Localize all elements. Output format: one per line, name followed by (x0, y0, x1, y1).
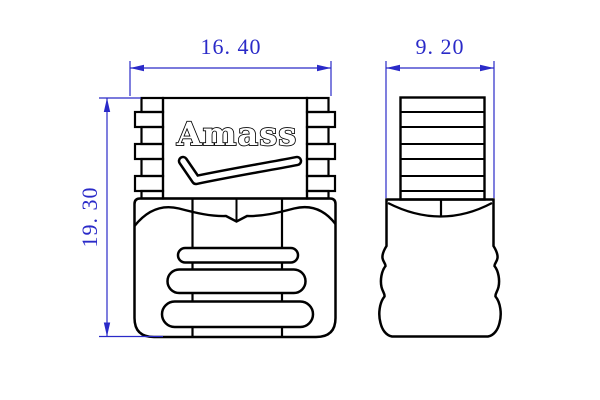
side-boot-outline (379, 200, 500, 337)
arrowhead-up-icon (104, 98, 110, 112)
arrowhead-right-icon (480, 65, 494, 71)
boot-rib-3 (162, 302, 313, 328)
front-view: Amass (135, 98, 336, 337)
arrowhead-right-icon (317, 65, 331, 71)
drawing-canvas: Amass (0, 0, 600, 400)
connector-drawing: Amass (0, 0, 600, 400)
boot-rib-2 (168, 270, 306, 294)
arrowhead-down-icon (104, 323, 110, 337)
checkmark-swoosh-icon (183, 161, 297, 180)
boot-wave-contour (135, 207, 336, 226)
grip-serrations-left (135, 98, 163, 199)
dimension-text-side-width: 9. 20 (416, 34, 465, 59)
side-view (379, 98, 500, 337)
dimension-side-width: 9. 20 (386, 34, 494, 198)
grip-serrations-right (307, 98, 335, 199)
amass-logo-text: Amass (176, 115, 297, 153)
boot-rib-1 (178, 248, 298, 263)
arrowhead-left-icon (130, 65, 144, 71)
side-housing-bands (401, 112, 485, 191)
arrowhead-left-icon (386, 65, 400, 71)
dimension-text-front-width: 16. 40 (201, 34, 262, 59)
dimension-front-height: 19. 30 (77, 98, 163, 337)
dimension-text-front-height: 19. 30 (77, 187, 102, 248)
dimension-front-width: 16. 40 (130, 34, 331, 96)
